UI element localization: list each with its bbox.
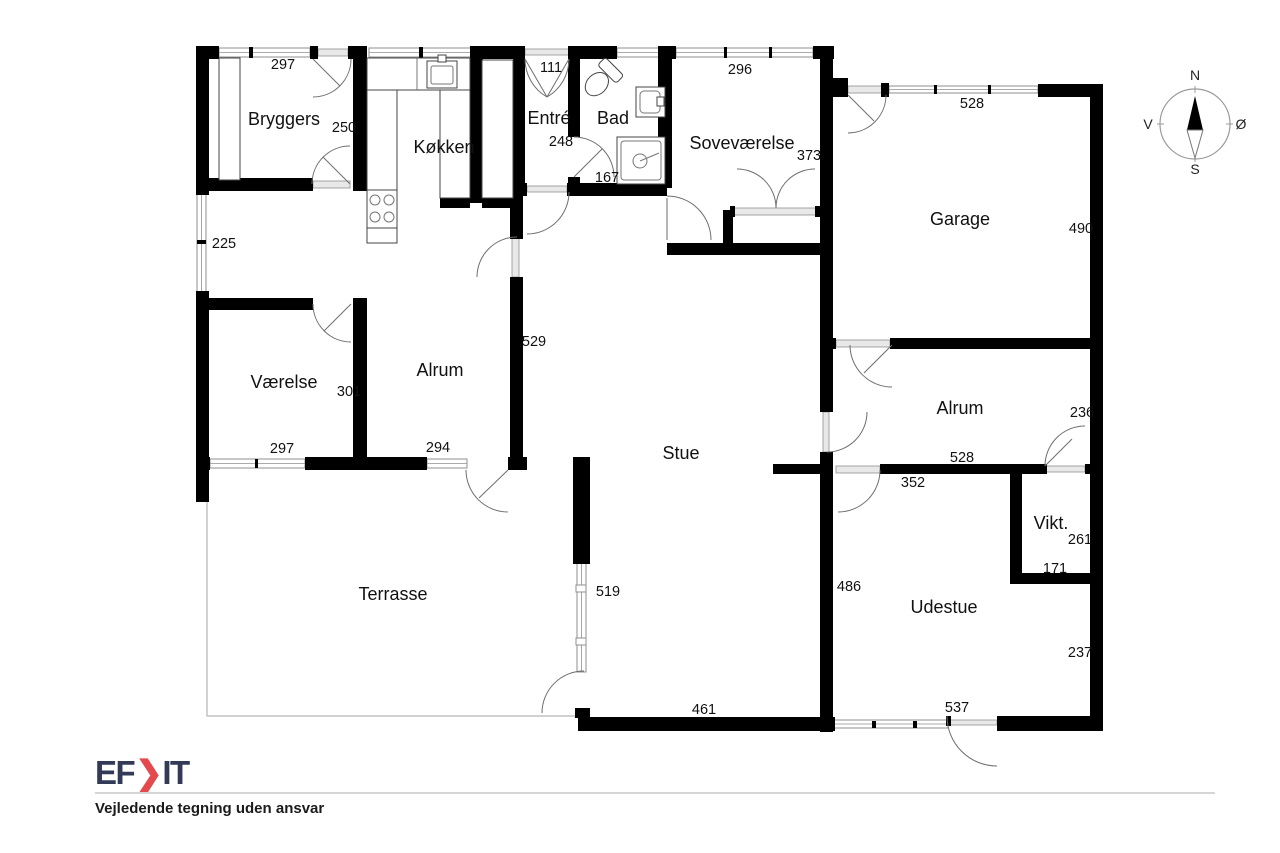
logo-text-suffix: IT [162, 754, 188, 791]
logo-chevron-icon: ❯ [134, 754, 162, 791]
dim-bad-width: 167 [595, 170, 619, 186]
room-label-udestue: Udestue [910, 597, 977, 617]
dim-alrum-width: 294 [426, 440, 450, 456]
room-label-vaerelse: Værelse [250, 372, 317, 392]
dim-terrasse-height: 519 [596, 584, 620, 600]
dim-entre-width: 111 [540, 60, 562, 76]
room-label-stue: Stue [662, 443, 699, 463]
dim-vaerelse-height: 301 [337, 384, 361, 400]
room-label-terrasse: Terrasse [358, 584, 427, 604]
compass-needle-north [1187, 96, 1203, 130]
dim-vaerelse-width: 297 [270, 441, 294, 457]
room-label-vikt: Vikt. [1034, 513, 1069, 533]
dim-sovevaerelse-height: 373 [797, 148, 821, 164]
dim-garage-width: 528 [960, 96, 984, 112]
tall-cabinet-icon [482, 60, 513, 198]
room-label-bryggers: Bryggers [248, 109, 320, 129]
dim-udestue-width: 537 [945, 700, 969, 716]
footer-divider [95, 792, 1215, 794]
floor-plan-drawing: N S V Ø Bryggers Køkken Entré Bad Sovevæ… [0, 0, 1280, 853]
room-label-sovevaerelse: Soveværelse [689, 133, 794, 153]
room-label-kokken: Køkken [413, 137, 474, 157]
compass-needle-south [1187, 130, 1203, 158]
toilet-icon [578, 57, 623, 102]
compass-label-west: V [1143, 116, 1153, 132]
bathroom-sink-icon [636, 87, 665, 117]
dim-alrum-oest-width: 528 [950, 450, 974, 466]
compass-label-south: S [1190, 161, 1199, 177]
room-label-alrum-oest: Alrum [936, 398, 983, 418]
bryggers-cabinet-icon [219, 58, 240, 180]
dim-entre-height: 248 [549, 134, 573, 150]
dim-alrum-height: 529 [522, 334, 546, 350]
disclaimer-text: Vejledende tegning uden ansvar [95, 800, 324, 817]
dim-alrum-window: 225 [212, 236, 236, 252]
room-label-entre: Entré [527, 108, 570, 128]
dim-udestue-height-east: 237 [1068, 645, 1092, 661]
floor-plan-page: N S V Ø Bryggers Køkken Entré Bad Sovevæ… [0, 0, 1280, 853]
compass-label-east: Ø [1236, 116, 1247, 132]
logo-text-prefix: EF [95, 754, 134, 791]
dim-udestue-opening: 352 [901, 475, 925, 491]
dim-garage-height: 490 [1069, 221, 1093, 237]
compass-label-north: N [1190, 67, 1200, 83]
shower-icon [617, 137, 665, 184]
dim-udestue-height-west: 486 [837, 579, 861, 595]
dim-bryggers-width: 297 [271, 57, 295, 73]
room-label-bad: Bad [597, 108, 629, 128]
room-label-alrum-vest: Alrum [416, 360, 463, 380]
dim-sovevaerelse-width: 296 [728, 62, 752, 78]
room-label-garage: Garage [930, 209, 990, 229]
dim-alrum-oest-height: 236 [1070, 405, 1094, 421]
dim-vikt-width: 171 [1043, 561, 1067, 577]
dim-bryggers-height: 250 [332, 120, 356, 136]
efkt-logo: EF❯IT [95, 756, 189, 789]
dim-vikt-height: 261 [1068, 532, 1092, 548]
stove-icon [367, 190, 397, 228]
dim-stue-width: 461 [692, 702, 716, 718]
compass-rose: N S V Ø [1143, 67, 1246, 177]
